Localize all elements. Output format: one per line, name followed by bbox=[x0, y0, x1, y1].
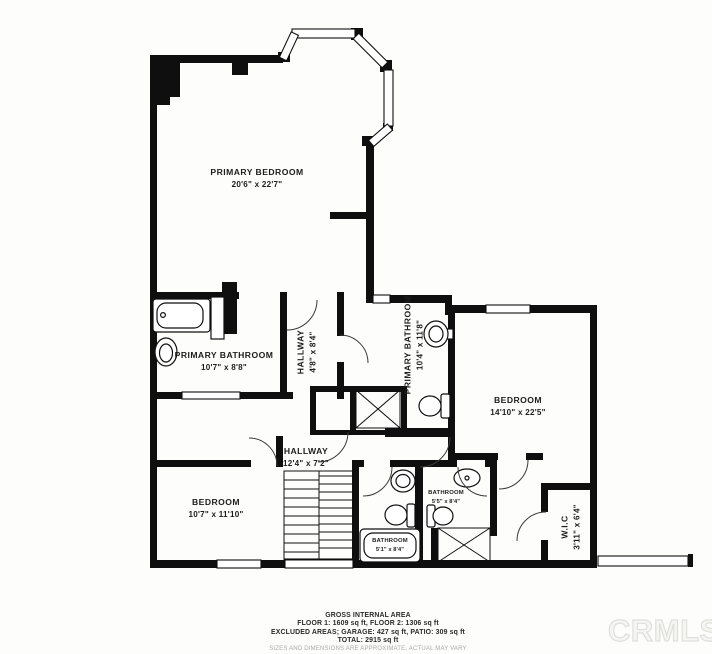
bathroom-small-toilet bbox=[427, 505, 453, 527]
door-arc bbox=[249, 438, 277, 466]
area-summary-disclaimer: SIZES AND DIMENSIONS ARE APPROXIMATE, AC… bbox=[168, 646, 568, 653]
door-arc bbox=[340, 335, 368, 363]
room-name: HALLWAY bbox=[294, 330, 307, 374]
room-name: BATHROOM bbox=[428, 489, 464, 498]
door-arc bbox=[517, 512, 546, 541]
shower-center bbox=[356, 390, 400, 428]
door-arc bbox=[287, 300, 317, 330]
window bbox=[486, 305, 530, 313]
room-name: BEDROOM bbox=[490, 394, 546, 407]
bay-window-upper-right bbox=[353, 33, 388, 68]
primary-bath2-toilet bbox=[419, 394, 450, 418]
room-label-hallway-upper: HALLWAY 4'8" x 8'4" bbox=[294, 330, 319, 374]
room-dimensions: 10'7" x 8'8" bbox=[175, 362, 274, 374]
room-label-hallway-main: HALLWAY 12'4" x 7'2" bbox=[283, 445, 329, 470]
floor-plan-canvas: PRIMARY BEDROOM 20'6" x 22'7" PRIMARY BA… bbox=[0, 0, 712, 654]
room-dimensions: 3'11" x 6'4" bbox=[571, 504, 583, 550]
door-arc bbox=[499, 460, 528, 489]
room-dimensions: 10'7" x 11'10" bbox=[188, 509, 243, 521]
room-label-bedroom-right: BEDROOM 14'10" x 22'5" bbox=[490, 394, 546, 419]
crmls-watermark: CRMLS bbox=[608, 613, 712, 649]
room-name: W.I.C bbox=[558, 504, 571, 550]
room-dimensions: 5'5" x 8'4" bbox=[428, 498, 464, 507]
room-label-primary-bathroom-2: PRIMARY BATHROOM 10'4" x 11'8" bbox=[401, 296, 426, 395]
room-label-primary-bedroom: PRIMARY BEDROOM 20'6" x 22'7" bbox=[210, 166, 303, 191]
staircase bbox=[284, 471, 354, 560]
area-summary-total: TOTAL: 2915 sq ft bbox=[168, 637, 568, 645]
window bbox=[217, 560, 261, 568]
bay-window-left bbox=[279, 32, 298, 61]
room-label-bedroom-left: BEDROOM 10'7" x 11'10" bbox=[188, 496, 243, 521]
room-dimensions: 4'8" x 8'4" bbox=[307, 330, 319, 374]
room-dimensions: 14'10" x 22'5" bbox=[490, 407, 546, 419]
door-arc bbox=[363, 467, 392, 496]
room-label-walk-in-closet: W.I.C 3'11" x 6'4" bbox=[558, 504, 583, 550]
room-name: PRIMARY BEDROOM bbox=[210, 166, 303, 179]
bathroom-lower-toilet bbox=[385, 504, 415, 527]
room-dimensions: 10'4" x 11'8" bbox=[414, 296, 426, 395]
area-summary-excluded: EXCLUDED AREAS; GARAGE: 427 sq ft, PATIO… bbox=[168, 629, 568, 637]
room-name: HALLWAY bbox=[283, 445, 329, 458]
room-label-bathroom-lower: BATHROOM 5'1" x 8'4" bbox=[372, 537, 408, 554]
bay-window-right bbox=[384, 70, 393, 126]
area-summary-title: GROSS INTERNAL AREA bbox=[168, 612, 568, 620]
room-dimensions: 5'1" x 8'4" bbox=[372, 546, 408, 555]
floor-plan-drawing bbox=[0, 0, 712, 654]
room-name: PRIMARY BATHROOM bbox=[401, 296, 414, 395]
room-name: BEDROOM bbox=[188, 496, 243, 509]
bay-window-lower-right bbox=[369, 124, 393, 146]
room-name: PRIMARY BATHROOM bbox=[175, 349, 274, 362]
bathroom-lower-sink bbox=[391, 470, 415, 492]
room-dimensions: 12'4" x 7'2" bbox=[283, 458, 329, 470]
room-label-primary-bathroom: PRIMARY BATHROOM 10'7" x 8'8" bbox=[175, 349, 274, 374]
window bbox=[373, 295, 390, 303]
bay-window-top bbox=[292, 29, 355, 38]
shower-glass bbox=[182, 392, 240, 399]
room-name: BATHROOM bbox=[372, 537, 408, 546]
shower-bottom bbox=[438, 528, 490, 562]
room-label-bathroom-small: BATHROOM 5'5" x 8'4" bbox=[428, 489, 464, 506]
room-dimensions: 20'6" x 22'7" bbox=[210, 179, 303, 191]
area-summary-floors: FLOOR 1: 1609 sq ft, FLOOR 2: 1306 sq ft bbox=[168, 620, 568, 628]
area-summary: GROSS INTERNAL AREA FLOOR 1: 1609 sq ft,… bbox=[168, 612, 568, 653]
primary-bathtub bbox=[153, 297, 224, 339]
patio-rail bbox=[598, 556, 688, 566]
